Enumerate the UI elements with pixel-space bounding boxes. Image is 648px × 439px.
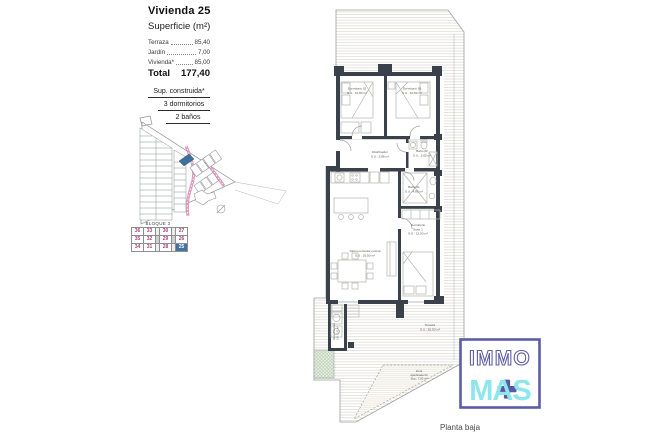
unit-grid-row: 34 31 28 25 xyxy=(132,244,188,252)
surface-subtitle: Superficie (m²) xyxy=(148,21,210,32)
dots-leader xyxy=(171,44,193,45)
dots-leader xyxy=(176,64,192,65)
unit-number-cell-highlighted: 25 xyxy=(176,244,188,252)
unit-number-cell: 31 xyxy=(144,244,156,252)
unit-number-cell: 35 xyxy=(132,236,144,244)
unit-number-cell: 28 xyxy=(160,244,172,252)
total-value: 177,40 xyxy=(181,68,210,79)
surface-table: Terraza 85,40 Jardín 7,00 Vivienda* 85,0… xyxy=(148,36,210,66)
plan-caption: Planta baja xyxy=(428,423,492,432)
floor-plan: Dormitorio 02 S.U.: 10,80 m² Dormitorio … xyxy=(308,2,480,436)
unit-number-cell: 27 xyxy=(176,228,188,236)
unit-number-cell: 34 xyxy=(132,244,144,252)
room-area: S.U.: 3,65 m² xyxy=(413,153,431,157)
unit-grid: 36 33 30 27 35 32 29 26 34 31 28 xyxy=(131,227,188,252)
surface-row: Jardín 7,00 xyxy=(148,46,210,56)
room-area: Sup.: 7,00 m² xyxy=(411,377,428,381)
surface-label: Vivienda* xyxy=(148,59,174,66)
spec-built: Sup. construida* xyxy=(148,88,210,98)
unit-number-cell: 30 xyxy=(160,228,172,236)
terrace-drain xyxy=(348,342,354,348)
total-label: Total xyxy=(148,68,170,79)
plot-strips-left xyxy=(140,128,172,220)
room-area: S.U.: 12,00 m² xyxy=(408,232,428,236)
block-table-wrap: BLOQUE 3 36 33 30 27 35 32 29 26 34 31 xyxy=(131,221,189,252)
room-area: S.U.: 10,80 m² xyxy=(347,91,367,95)
room-area: S.U.: 25,50 m² xyxy=(355,253,375,257)
unit-number-cell: 32 xyxy=(144,236,156,244)
surface-value: 85,00 xyxy=(195,59,210,66)
unit-number-cell: 33 xyxy=(144,228,156,236)
logo-word-immo: IMMO xyxy=(469,347,531,370)
surface-label: Jardín xyxy=(148,49,165,56)
planter-square xyxy=(314,350,334,378)
room-area: S.U.: 2,50 m² xyxy=(337,326,340,340)
unit-number-cell: 29 xyxy=(160,236,172,244)
room-label: Almacenamiento xyxy=(333,322,336,340)
spec-bedrooms: 3 dormitorios xyxy=(158,101,210,111)
unit-title: Vivienda 25 xyxy=(148,5,210,17)
unit-number-cell: 26 xyxy=(176,236,188,244)
total-row: Total 177,40 xyxy=(148,68,210,79)
surface-value: 7,00 xyxy=(198,49,210,56)
dots-leader xyxy=(167,54,196,55)
immomas-logo: IMMO MAS xyxy=(459,338,541,409)
block-label: BLOQUE 3 xyxy=(131,221,185,226)
unit-number-cell: 36 xyxy=(132,228,144,236)
surface-row: Vivienda* 85,00 xyxy=(148,56,210,66)
room-area: S.U.: 4,85 m² xyxy=(405,189,423,193)
room-area: S.U.: 5,88 m² xyxy=(371,154,389,158)
logo-word-mas: MAS xyxy=(469,375,531,407)
surface-value: 85,40 xyxy=(195,39,210,46)
surface-row: Terraza 85,40 xyxy=(148,36,210,46)
unit-grid-row: 36 33 30 27 xyxy=(132,228,188,236)
room-area: S.U.: 62,50 m² xyxy=(420,327,440,331)
floorplan-flyer: Vivienda 25 Superficie (m²) Terraza 85,4… xyxy=(0,0,648,439)
room-area: S.U.: 10,50 m² xyxy=(402,91,422,95)
unit-info-panel: Vivienda 25 Superficie (m²) Terraza 85,4… xyxy=(148,5,210,124)
surface-label: Terraza xyxy=(148,39,169,46)
unit-grid-row: 35 32 29 26 xyxy=(132,236,188,244)
